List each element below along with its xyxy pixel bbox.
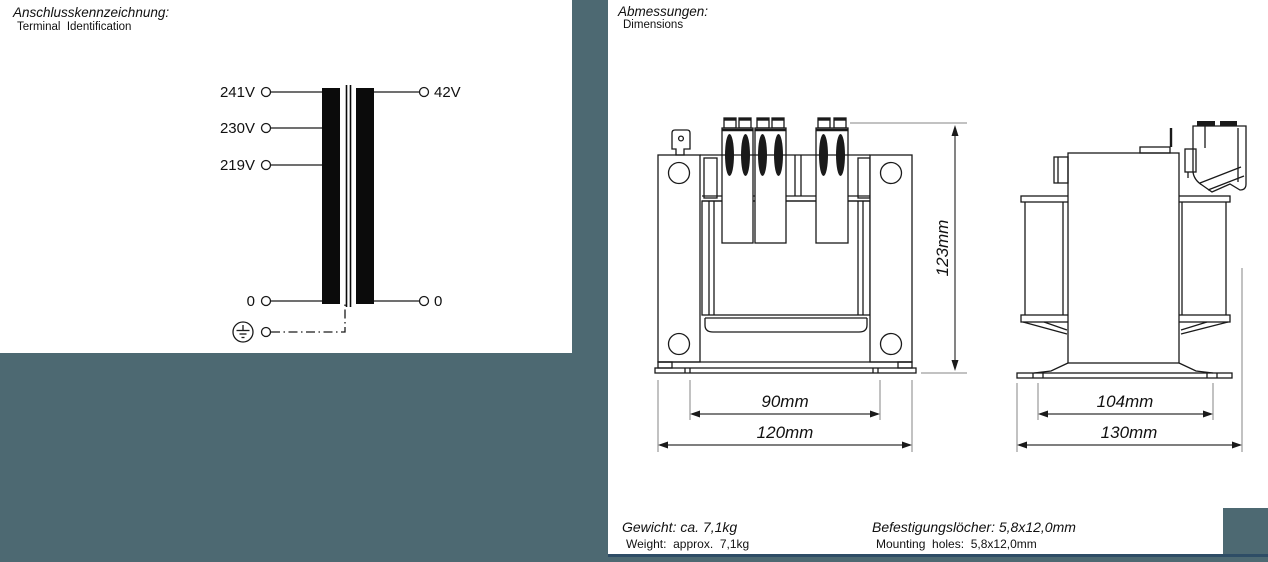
tap-label-230v: 230V <box>220 120 255 137</box>
left-mounting-plate <box>658 155 700 362</box>
dimension-120mm-label: 120mm <box>757 423 814 442</box>
earth-tab <box>672 130 690 155</box>
tap-label-42v: 42V <box>434 84 461 101</box>
primary-terminals <box>262 88 323 306</box>
side-view-drawing <box>1017 121 1246 378</box>
terminal-identification-panel: Anschlusskennzeichnung: Terminal Identif… <box>0 0 572 353</box>
primary-winding <box>322 88 340 304</box>
terminal-diagram-svg: 241V 230V 219V 0 42V 0 <box>0 0 572 353</box>
terminal-blocks <box>722 118 848 243</box>
tap-label-219v: 219V <box>220 157 255 174</box>
mounting-holes-label-de: Befestigungslöcher: 5,8x12,0mm <box>872 519 1076 535</box>
coil-body-side <box>1068 153 1179 363</box>
dimensions-panel: Abmessungen: Dimensions <box>608 0 1268 554</box>
weight-label-de: Gewicht: ca. 7,1kg <box>622 519 737 535</box>
corner-block <box>1223 508 1268 554</box>
bottom-accent-bar <box>608 554 1268 557</box>
tap-label-241v: 241V <box>220 84 255 101</box>
mounting-holes-label-en: Mounting holes: 5,8x12,0mm <box>876 537 1037 551</box>
weight-label-en: Weight: approx. 7,1kg <box>626 537 749 551</box>
tap-label-0-secondary: 0 <box>434 293 442 310</box>
dimension-130mm-label: 130mm <box>1101 423 1158 442</box>
side-base <box>1017 363 1232 378</box>
ground-dash-dot-line <box>271 304 345 332</box>
secondary-winding <box>356 88 374 304</box>
front-view-drawing <box>655 118 916 373</box>
front-base <box>655 362 916 373</box>
right-mounting-plate <box>870 155 912 362</box>
transformer-symbol <box>322 85 374 307</box>
tap-label-0-primary: 0 <box>247 293 255 310</box>
dimension-drawings-svg: 90mm 120mm 123mm <box>608 0 1268 510</box>
terminal-block-side <box>1185 121 1246 192</box>
dimension-90mm-label: 90mm <box>761 392 808 411</box>
datasheet-page: Anschlusskennzeichnung: Terminal Identif… <box>0 0 1268 562</box>
secondary-terminals <box>374 88 429 306</box>
dimension-104mm-label: 104mm <box>1097 392 1154 411</box>
dimension-123mm-label: 123mm <box>933 220 952 277</box>
